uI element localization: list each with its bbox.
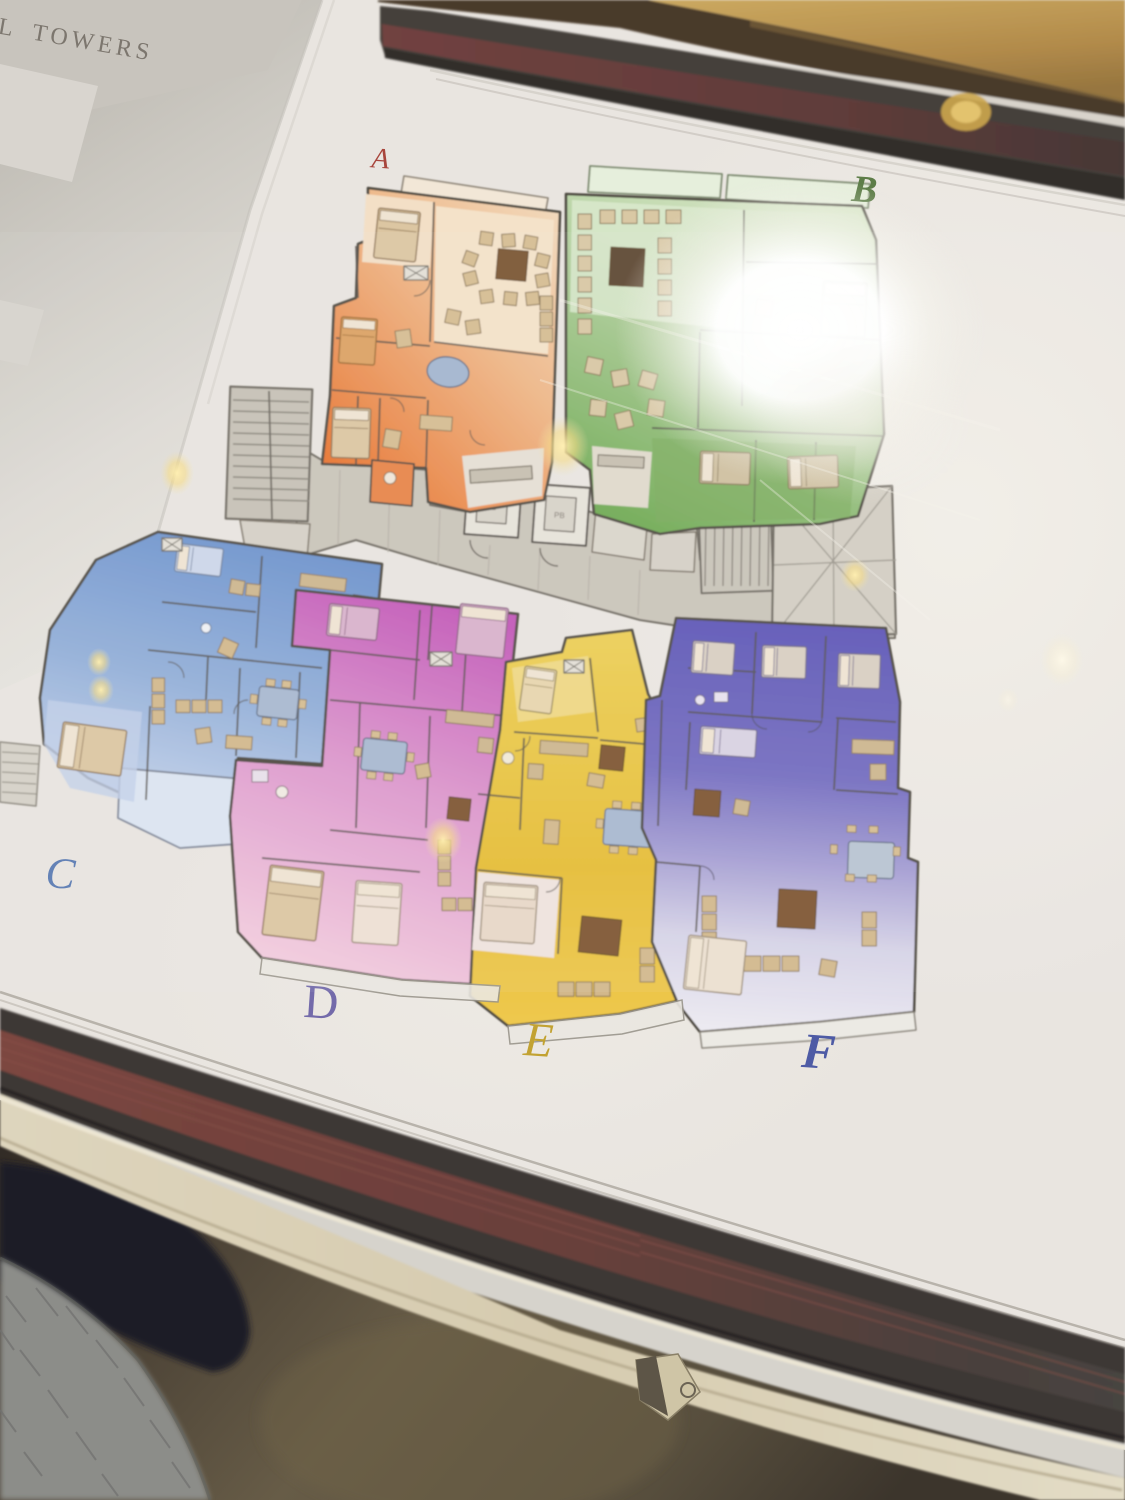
- svg-text:F: F: [799, 1022, 837, 1080]
- svg-text:E: E: [521, 1013, 555, 1068]
- svg-text:A: A: [369, 142, 391, 175]
